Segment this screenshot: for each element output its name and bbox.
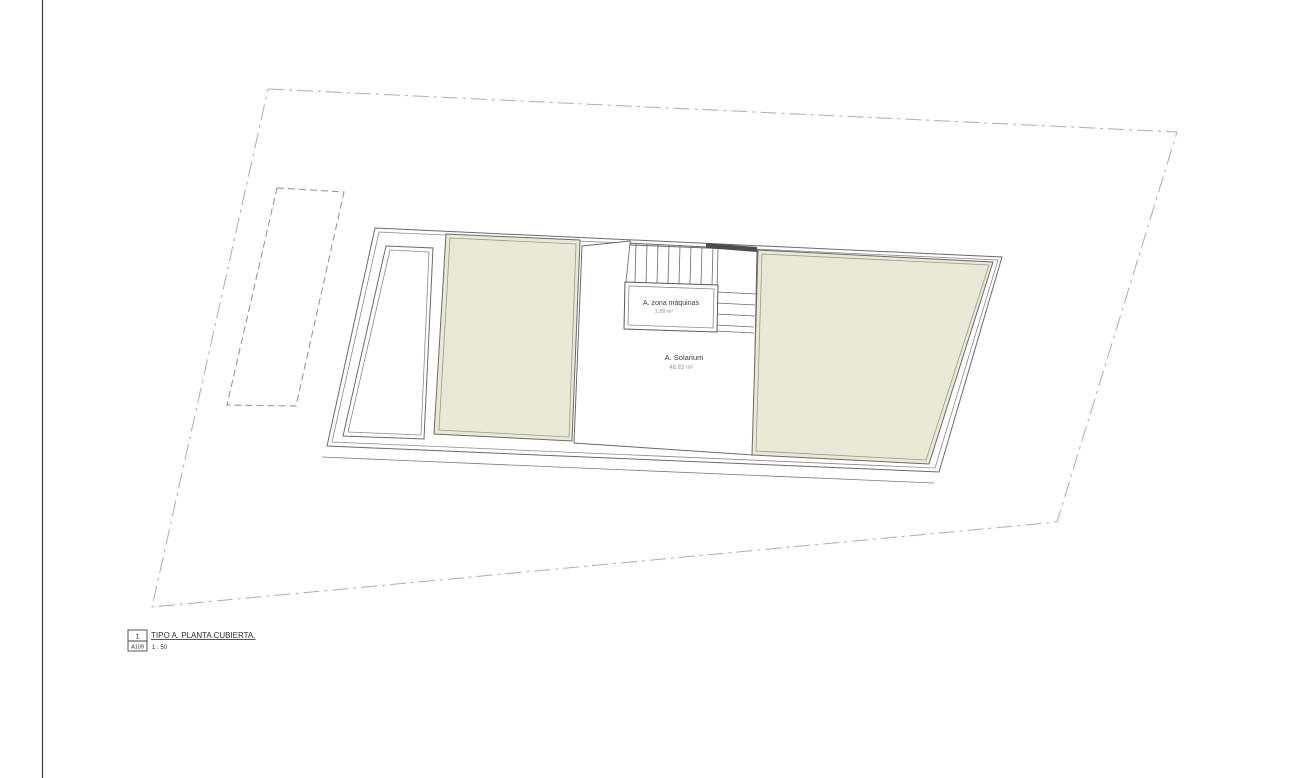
- parking-area-dashed: [227, 188, 344, 406]
- detail-number: 1: [136, 634, 140, 641]
- drawing-sheet: A. zona máquinas 1.88 m² A. Solarium 48.…: [0, 0, 1315, 778]
- right-green-roof-fill: [752, 250, 993, 464]
- left-green-roof: [434, 234, 580, 441]
- title-block: 1 A109 TIPO A. PLANTA CUBIERTA. 1 : 50: [128, 630, 255, 651]
- solarium-outline: [574, 241, 757, 455]
- drawing-title: TIPO A. PLANTA CUBIERTA.: [151, 631, 255, 640]
- floor-plan-svg: A. zona máquinas 1.88 m² A. Solarium 48.…: [0, 0, 1315, 778]
- sheet-number: A109: [131, 645, 144, 651]
- drawing-scale: 1 : 50: [152, 645, 168, 651]
- machine-room: A. zona máquinas 1.88 m²: [624, 282, 718, 332]
- solarium-area: A. zona máquinas 1.88 m² A. Solarium 48.…: [574, 241, 757, 455]
- solarium-area-value: 48.83 m²: [669, 365, 693, 371]
- left-green-roof-fill: [434, 234, 580, 441]
- solarium-label: A. Solarium: [665, 353, 704, 362]
- machine-room-outer: [624, 282, 718, 332]
- machine-room-area: 1.88 m²: [655, 309, 674, 315]
- machine-room-label: A. zona máquinas: [643, 300, 700, 307]
- right-green-roof: [752, 250, 993, 464]
